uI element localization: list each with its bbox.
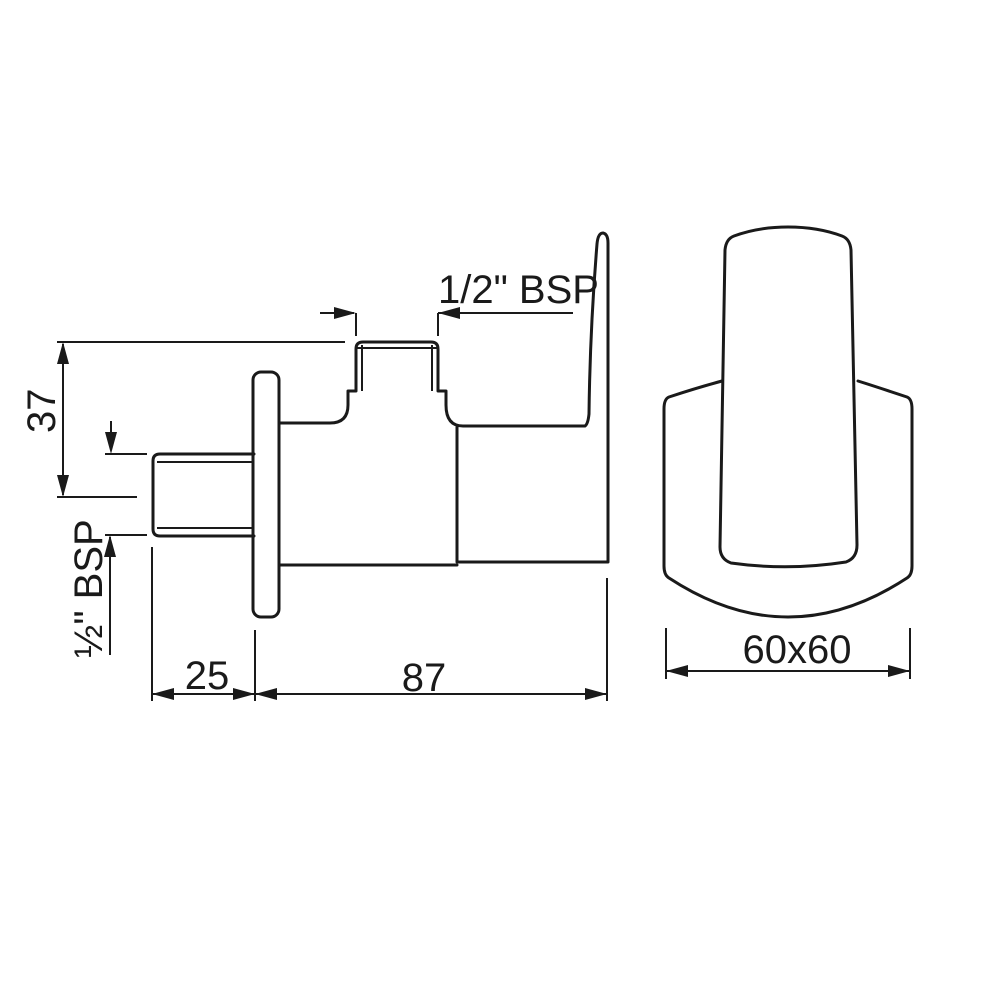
dim-outlet-thread: 1/2" BSP xyxy=(320,268,599,336)
dim-faceplate: 60x60 xyxy=(666,628,910,679)
outlet-thread-detail xyxy=(356,345,438,391)
inlet-thread xyxy=(153,454,254,536)
dim-lengths: 25 87 xyxy=(152,547,607,701)
dim-extension-line xyxy=(356,313,438,336)
handle-front-outline xyxy=(720,227,857,567)
dim-arrow-left xyxy=(666,665,688,677)
wall-flange xyxy=(253,372,279,617)
angle-valve-drawing: 37 1/2" BSP ½" BSP 25 87 xyxy=(0,0,1000,1000)
dim-extension-line xyxy=(105,454,147,535)
inlet-thread-detail xyxy=(157,462,254,528)
dim-label-inlet-thread: ½" BSP xyxy=(67,519,111,658)
dim-arrow-right xyxy=(585,688,607,700)
dim-label-body-length: 87 xyxy=(402,656,447,700)
dim-inlet-thread: ½" BSP xyxy=(67,421,147,658)
dim-arrow-up xyxy=(57,342,69,364)
dim-arrow-left xyxy=(152,688,174,700)
front-view xyxy=(664,227,912,617)
faceplate-outline xyxy=(664,381,912,617)
dim-arrow-down xyxy=(57,475,69,497)
technical-drawing-page: 37 1/2" BSP ½" BSP 25 87 xyxy=(0,0,1000,1000)
dim-arrow-left xyxy=(255,688,277,700)
dim-height-37: 37 xyxy=(20,342,345,497)
dim-label-outlet-thread: 1/2" BSP xyxy=(438,268,599,312)
dim-arrow-right xyxy=(334,307,356,319)
dim-arrow-right xyxy=(233,688,255,700)
dim-label-height: 37 xyxy=(20,389,64,434)
dim-extension-line xyxy=(57,342,345,497)
dim-label-faceplate-size: 60x60 xyxy=(743,628,852,672)
dim-label-inlet-length: 25 xyxy=(185,654,230,698)
dim-arrow-down xyxy=(105,432,117,454)
dim-arrow-right xyxy=(888,665,910,677)
